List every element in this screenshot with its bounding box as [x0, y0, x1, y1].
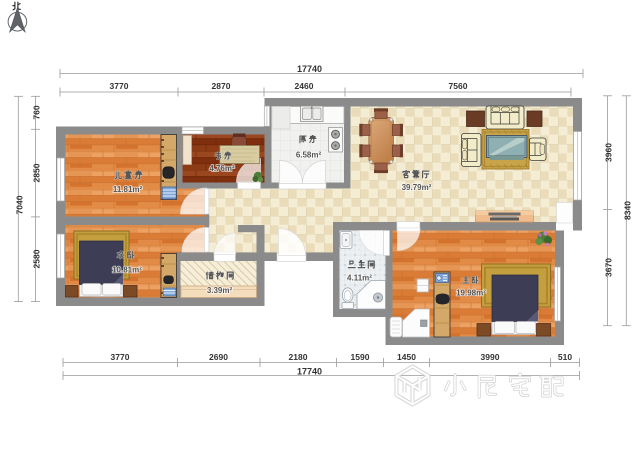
svg-text:3.39m²: 3.39m²: [207, 286, 233, 295]
svg-text:2180: 2180: [289, 352, 308, 362]
svg-text:3670: 3670: [604, 258, 614, 277]
svg-text:1590: 1590: [351, 352, 370, 362]
svg-text:2580: 2580: [32, 249, 42, 268]
svg-text:2460: 2460: [295, 81, 314, 91]
svg-text:4.11m²: 4.11m²: [347, 274, 372, 283]
svg-text:7040: 7040: [15, 195, 25, 214]
svg-text:2850: 2850: [32, 163, 42, 182]
svg-text:760: 760: [32, 105, 42, 119]
svg-text:7560: 7560: [449, 81, 468, 91]
svg-text:3990: 3990: [481, 352, 500, 362]
svg-text:39.79m²: 39.79m²: [402, 183, 432, 192]
svg-text:17740: 17740: [297, 64, 322, 74]
svg-text:6.58m²: 6.58m²: [296, 151, 322, 160]
svg-text:10.81m²: 10.81m²: [112, 266, 142, 275]
svg-text:17740: 17740: [297, 367, 322, 377]
svg-text:19.98m²: 19.98m²: [456, 289, 486, 298]
svg-text:1450: 1450: [397, 352, 416, 362]
svg-text:4.76m²: 4.76m²: [209, 164, 235, 173]
svg-text:2690: 2690: [209, 352, 228, 362]
svg-text:11.81m²: 11.81m²: [113, 185, 143, 194]
svg-text:8340: 8340: [623, 201, 633, 220]
svg-text:510: 510: [558, 352, 572, 362]
svg-text:2870: 2870: [212, 81, 231, 91]
svg-text:3770: 3770: [110, 81, 129, 91]
svg-text:3960: 3960: [604, 143, 614, 162]
svg-text:3770: 3770: [111, 352, 130, 362]
